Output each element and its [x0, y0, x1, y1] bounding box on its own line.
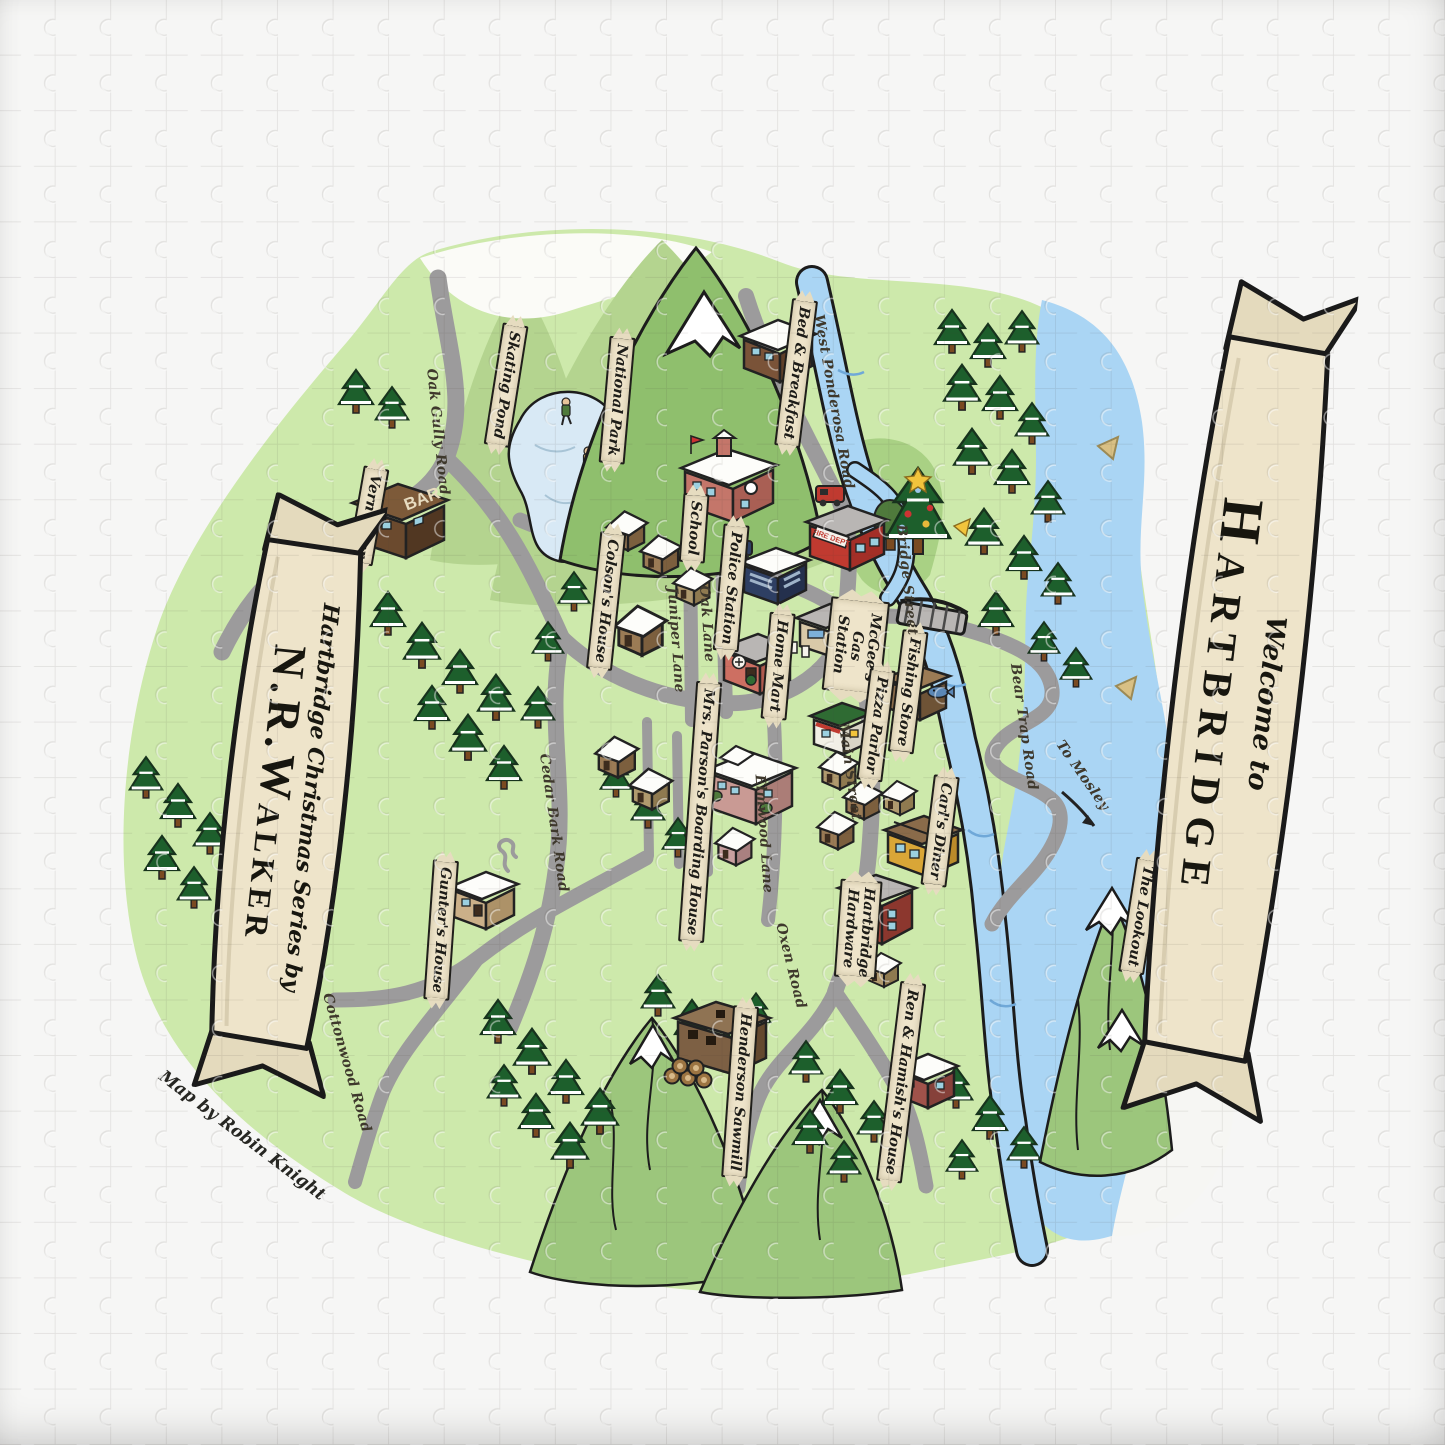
map-label-school: School — [679, 493, 710, 563]
puzzle-photo: BAR FIRE DEPT — [0, 0, 1445, 1445]
map-label-hartbridge-hardware: Hartbridge Hardware — [833, 879, 882, 980]
